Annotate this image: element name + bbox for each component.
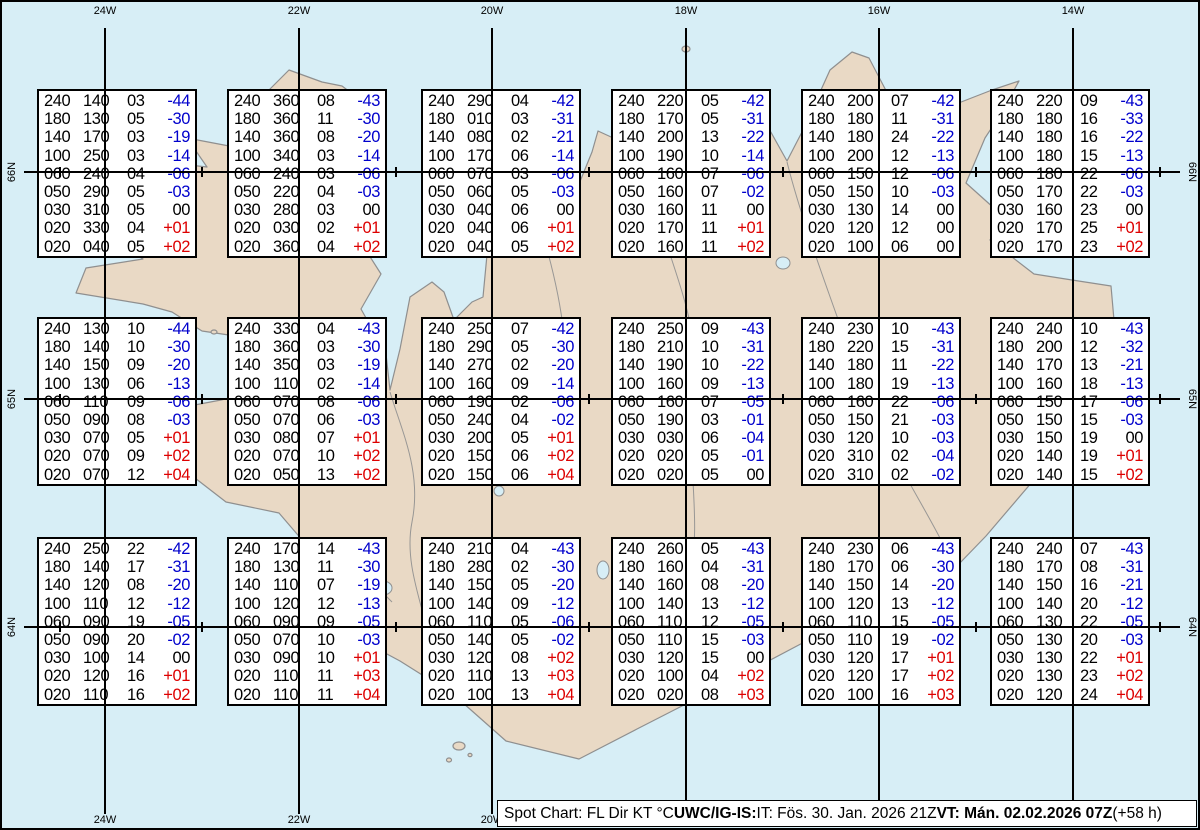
- temperature: -44: [160, 320, 190, 338]
- spot-data-row: 02005013+02: [234, 466, 380, 484]
- spot-data-row: 14008002-21: [428, 128, 574, 146]
- flight-level: 100: [234, 147, 273, 165]
- spot-data-row: 0301201500: [618, 649, 764, 667]
- temperature: -03: [924, 411, 954, 429]
- temperature: -20: [350, 128, 380, 146]
- temperature: +01: [734, 219, 764, 237]
- spot-data-row: 10016009-14: [428, 375, 574, 393]
- temperature: -02: [924, 631, 954, 649]
- temperature: -43: [924, 320, 954, 338]
- wind-speed: 04: [127, 165, 160, 183]
- caption-prefix: Spot Chart: FL Dir KT °C: [504, 805, 674, 823]
- wind-direction: 100: [467, 686, 511, 704]
- wind-speed: 18: [1080, 375, 1113, 393]
- spot-data-row: 06016022-06: [808, 393, 954, 411]
- temperature: +01: [350, 649, 380, 667]
- spot-data-row: 02004006+01: [428, 219, 574, 237]
- temperature: -06: [734, 165, 764, 183]
- temperature: -20: [160, 576, 190, 594]
- wind-direction: 130: [83, 320, 127, 338]
- wind-speed: 06: [511, 447, 544, 465]
- wind-direction: 120: [467, 649, 511, 667]
- temperature: -13: [924, 147, 954, 165]
- flight-level: 050: [428, 411, 467, 429]
- temperature: +01: [160, 667, 190, 685]
- wind-direction: 190: [657, 411, 701, 429]
- wind-speed: 12: [891, 147, 924, 165]
- wind-direction: 110: [273, 576, 317, 594]
- flight-level: 060: [997, 165, 1036, 183]
- flight-level: 050: [618, 411, 657, 429]
- temperature: -20: [160, 356, 190, 374]
- flight-level: 060: [234, 613, 273, 631]
- wind-speed: 08: [317, 393, 350, 411]
- flight-level: 240: [997, 320, 1036, 338]
- temperature: -31: [1113, 558, 1143, 576]
- wind-direction: 290: [467, 92, 511, 110]
- spot-data-row: 24024010-43: [997, 320, 1143, 338]
- flight-level: 060: [234, 393, 273, 411]
- temperature: -42: [734, 92, 764, 110]
- temperature: -20: [544, 576, 574, 594]
- caption-bar: Spot Chart: FL Dir KT °C UWC/IG-IS: IT: …: [497, 800, 1197, 827]
- wind-speed: 10: [317, 631, 350, 649]
- spot-data-row: 10012012-13: [234, 595, 380, 613]
- temperature: -31: [924, 338, 954, 356]
- wind-speed: 09: [701, 320, 734, 338]
- spot-data-row: 14015016-21: [997, 576, 1143, 594]
- wind-direction: 060: [467, 183, 511, 201]
- temperature: -06: [350, 165, 380, 183]
- temperature: -03: [1113, 411, 1143, 429]
- flight-level: 020: [428, 466, 467, 484]
- flight-level: 050: [428, 183, 467, 201]
- flight-level: 020: [808, 686, 847, 704]
- wind-speed: 11: [701, 201, 734, 219]
- spot-data-box: 24036008-4318036011-3014036008-201003400…: [227, 89, 387, 258]
- temperature: -03: [924, 429, 954, 447]
- wind-direction: 290: [467, 338, 511, 356]
- temperature: +03: [924, 686, 954, 704]
- wind-direction: 140: [467, 631, 511, 649]
- wind-direction: 110: [273, 667, 317, 685]
- spot-data-box: 24022009-4318018016-3314018016-221001801…: [990, 89, 1150, 258]
- wind-speed: 09: [511, 595, 544, 613]
- wind-speed: 03: [317, 356, 350, 374]
- temperature: -03: [544, 183, 574, 201]
- flight-level: 050: [618, 631, 657, 649]
- wind-speed: 10: [127, 320, 160, 338]
- spot-data-row: 24025022-42: [44, 540, 190, 558]
- temperature: 00: [1113, 429, 1143, 447]
- flight-level: 030: [808, 429, 847, 447]
- temperature: -43: [350, 540, 380, 558]
- wind-speed: 10: [891, 183, 924, 201]
- spot-data-row: 02017011+01: [618, 219, 764, 237]
- flight-level: 030: [618, 201, 657, 219]
- flight-level: 020: [618, 667, 657, 685]
- wind-speed: 07: [701, 183, 734, 201]
- wind-speed: 12: [891, 219, 924, 237]
- spot-data-row: 18029005-30: [428, 338, 574, 356]
- wind-direction: 220: [847, 338, 891, 356]
- spot-data-row: 02033004+01: [44, 219, 190, 237]
- temperature: -02: [544, 411, 574, 429]
- wind-direction: 240: [1036, 540, 1080, 558]
- wind-direction: 190: [657, 356, 701, 374]
- wind-speed: 12: [701, 613, 734, 631]
- flight-level: 020: [44, 447, 83, 465]
- wind-direction: 160: [657, 375, 701, 393]
- flight-level: 030: [808, 201, 847, 219]
- temperature: 00: [924, 219, 954, 237]
- temperature: +04: [544, 686, 574, 704]
- wind-direction: 130: [1036, 667, 1080, 685]
- wind-speed: 02: [317, 219, 350, 237]
- wind-speed: 25: [1080, 219, 1113, 237]
- spot-data-row: 10014020-12: [997, 595, 1143, 613]
- temperature: 00: [1113, 201, 1143, 219]
- spot-data-row: 02013023+02: [997, 667, 1143, 685]
- wind-speed: 09: [127, 447, 160, 465]
- wind-speed: 07: [701, 393, 734, 411]
- temperature: -06: [924, 393, 954, 411]
- spot-data-row: 14011007-19: [234, 576, 380, 594]
- wind-direction: 160: [1036, 375, 1080, 393]
- wind-direction: 090: [83, 613, 127, 631]
- wind-speed: 07: [1080, 540, 1113, 558]
- spot-data-box: 24024010-4318020012-3214017013-211001601…: [990, 317, 1150, 486]
- temperature: -30: [544, 338, 574, 356]
- spot-data-row: 06011005-06: [428, 613, 574, 631]
- spot-data-row: 02002008+03: [618, 686, 764, 704]
- wind-speed: 16: [127, 686, 160, 704]
- wind-direction: 020: [657, 447, 701, 465]
- flight-level: 020: [808, 447, 847, 465]
- flight-level: 020: [618, 238, 657, 256]
- spot-data-row: 14015014-20: [808, 576, 954, 594]
- temperature: -14: [544, 375, 574, 393]
- spot-data-row: 06015012-06: [808, 165, 954, 183]
- spot-data-row: 06016007-05: [618, 393, 764, 411]
- wind-speed: 02: [317, 375, 350, 393]
- temperature: +02: [1113, 466, 1143, 484]
- wind-speed: 05: [511, 183, 544, 201]
- spot-data-row: 14027002-20: [428, 356, 574, 374]
- spot-data-row: 05014005-02: [428, 631, 574, 649]
- spot-data-row: 14015005-20: [428, 576, 574, 594]
- wind-speed: 09: [127, 356, 160, 374]
- wind-speed: 07: [701, 165, 734, 183]
- temperature: +03: [350, 667, 380, 685]
- spot-data-row: 14018016-22: [997, 128, 1143, 146]
- temperature: -04: [734, 429, 764, 447]
- spot-data-row: 02014015+02: [997, 466, 1143, 484]
- wind-speed: 24: [891, 128, 924, 146]
- spot-data-row: 10025003-14: [44, 147, 190, 165]
- wind-speed: 06: [891, 238, 924, 256]
- temperature: +02: [160, 447, 190, 465]
- spot-data-row: 14018024-22: [808, 128, 954, 146]
- temperature: -06: [160, 165, 190, 183]
- flight-level: 100: [808, 147, 847, 165]
- temperature: +01: [160, 219, 190, 237]
- wind-direction: 150: [847, 576, 891, 594]
- flight-level: 180: [808, 110, 847, 128]
- spot-data-row: 02004005+02: [428, 238, 574, 256]
- wind-direction: 330: [83, 219, 127, 237]
- temperature: -05: [734, 393, 764, 411]
- wind-speed: 03: [317, 165, 350, 183]
- wind-direction: 120: [657, 649, 701, 667]
- spot-data-row: 06016007-06: [618, 165, 764, 183]
- spot-data-row: 03012010-03: [808, 429, 954, 447]
- wind-direction: 140: [1036, 447, 1080, 465]
- flight-level: 050: [44, 183, 83, 201]
- wind-direction: 180: [847, 128, 891, 146]
- temperature: +01: [544, 429, 574, 447]
- spot-data-row: 10018015-13: [997, 147, 1143, 165]
- wind-direction: 220: [1036, 92, 1080, 110]
- spot-data-row: 02010016+03: [808, 686, 954, 704]
- flight-level: 050: [44, 411, 83, 429]
- wind-direction: 160: [657, 238, 701, 256]
- spot-data-row: 10013006-13: [44, 375, 190, 393]
- wind-speed: 05: [701, 466, 734, 484]
- flight-level: 180: [234, 338, 273, 356]
- spot-data-box: 24020007-4218018011-3114018024-221002001…: [801, 89, 961, 258]
- wind-speed: 04: [511, 92, 544, 110]
- spot-data-row: 02014019+01: [997, 447, 1143, 465]
- temperature: -13: [1113, 147, 1143, 165]
- flight-level: 140: [234, 356, 273, 374]
- wind-direction: 110: [273, 375, 317, 393]
- wind-speed: 10: [317, 447, 350, 465]
- spot-data-row: 02016011+02: [618, 238, 764, 256]
- temperature: +02: [734, 238, 764, 256]
- wind-speed: 09: [701, 375, 734, 393]
- flight-level: 100: [997, 147, 1036, 165]
- wind-direction: 120: [1036, 686, 1080, 704]
- wind-direction: 110: [467, 667, 511, 685]
- spot-data-row: 14012008-20: [44, 576, 190, 594]
- spot-data-row: 24020007-42: [808, 92, 954, 110]
- spot-data-row: 02017025+01: [997, 219, 1143, 237]
- wind-speed: 17: [127, 558, 160, 576]
- wind-direction: 310: [83, 201, 127, 219]
- temperature: +02: [350, 466, 380, 484]
- wind-direction: 140: [1036, 466, 1080, 484]
- temperature: +03: [734, 686, 764, 704]
- wind-direction: 080: [273, 429, 317, 447]
- spot-data-row: 18018016-33: [997, 110, 1143, 128]
- flight-level: 140: [808, 576, 847, 594]
- flight-level: 240: [428, 540, 467, 558]
- wind-direction: 110: [83, 686, 127, 704]
- wind-speed: 09: [511, 375, 544, 393]
- spot-data-row: 18028002-30: [428, 558, 574, 576]
- wind-speed: 02: [891, 466, 924, 484]
- wind-speed: 12: [317, 595, 350, 613]
- wind-direction: 110: [847, 631, 891, 649]
- flight-level: 140: [997, 128, 1036, 146]
- wind-direction: 090: [83, 631, 127, 649]
- spot-data-row: 10016018-13: [997, 375, 1143, 393]
- wind-direction: 360: [273, 92, 317, 110]
- wind-direction: 160: [657, 558, 701, 576]
- spot-data-row: 05015010-03: [808, 183, 954, 201]
- wind-direction: 110: [83, 595, 127, 613]
- flight-level: 180: [618, 558, 657, 576]
- flight-level: 050: [808, 183, 847, 201]
- temperature: -02: [160, 631, 190, 649]
- temperature: -14: [160, 147, 190, 165]
- wind-direction: 240: [467, 411, 511, 429]
- wind-speed: 03: [127, 92, 160, 110]
- spot-data-row: 02031002-02: [808, 466, 954, 484]
- wind-speed: 10: [127, 338, 160, 356]
- temperature: -43: [924, 540, 954, 558]
- flight-level: 240: [997, 92, 1036, 110]
- flight-level: 020: [997, 667, 1036, 685]
- spot-data-row: 24036008-43: [234, 92, 380, 110]
- temperature: -14: [734, 147, 764, 165]
- spot-data-row: 02003002+01: [234, 219, 380, 237]
- flight-level: 060: [428, 165, 467, 183]
- wind-speed: 04: [511, 540, 544, 558]
- temperature: -01: [734, 411, 764, 429]
- spot-data-row: 18014010-30: [44, 338, 190, 356]
- spot-data-row: 10034003-14: [234, 147, 380, 165]
- wind-speed: 02: [511, 356, 544, 374]
- spot-data-row: 18014017-31: [44, 558, 190, 576]
- wind-speed: 02: [891, 447, 924, 465]
- flight-level: 180: [428, 110, 467, 128]
- flight-level: 020: [618, 447, 657, 465]
- wind-speed: 13: [701, 595, 734, 613]
- flight-level: 140: [618, 356, 657, 374]
- wind-direction: 180: [1036, 165, 1080, 183]
- flight-level: 240: [234, 92, 273, 110]
- wind-speed: 05: [127, 183, 160, 201]
- flight-level: 060: [997, 613, 1036, 631]
- temperature: +04: [544, 466, 574, 484]
- temperature: +01: [924, 649, 954, 667]
- temperature: -13: [924, 375, 954, 393]
- wind-direction: 160: [657, 165, 701, 183]
- wind-speed: 20: [1080, 631, 1113, 649]
- flight-level: 050: [428, 631, 467, 649]
- wind-direction: 070: [83, 447, 127, 465]
- flight-level: 020: [428, 238, 467, 256]
- spot-data-row: 06011012-05: [618, 613, 764, 631]
- spot-data-row: 06013022-05: [997, 613, 1143, 631]
- wind-speed: 08: [701, 686, 734, 704]
- flight-level: 020: [428, 447, 467, 465]
- wind-speed: 03: [317, 338, 350, 356]
- wind-speed: 19: [1080, 429, 1113, 447]
- temperature: +01: [350, 219, 380, 237]
- temperature: -42: [924, 92, 954, 110]
- wind-direction: 150: [847, 411, 891, 429]
- flight-level: 100: [234, 595, 273, 613]
- wind-direction: 160: [467, 375, 511, 393]
- wind-speed: 21: [891, 411, 924, 429]
- temperature: -05: [924, 613, 954, 631]
- wind-speed: 22: [1080, 165, 1113, 183]
- wind-direction: 330: [273, 320, 317, 338]
- temperature: -44: [160, 92, 190, 110]
- flight-level: 030: [997, 429, 1036, 447]
- temperature: -14: [350, 147, 380, 165]
- spot-data-row: 24021004-43: [428, 540, 574, 558]
- spot-data-row: 02007012+04: [44, 466, 190, 484]
- wind-direction: 030: [273, 219, 317, 237]
- wind-speed: 05: [127, 201, 160, 219]
- wind-speed: 02: [511, 558, 544, 576]
- wind-speed: 05: [127, 110, 160, 128]
- wind-direction: 180: [1036, 147, 1080, 165]
- wind-direction: 340: [273, 147, 317, 165]
- spot-data-row: 03012008+02: [428, 649, 574, 667]
- flight-level: 240: [44, 540, 83, 558]
- spot-data-box: 24029004-4218001003-3114008002-211001700…: [421, 89, 581, 258]
- flight-level: 060: [618, 613, 657, 631]
- temperature: -32: [1113, 338, 1143, 356]
- wind-direction: 160: [657, 183, 701, 201]
- wind-direction: 130: [83, 375, 127, 393]
- spot-data-row: 14035003-19: [234, 356, 380, 374]
- wind-direction: 170: [657, 219, 701, 237]
- spot-data-row: 24033004-43: [234, 320, 380, 338]
- wind-speed: 05: [127, 429, 160, 447]
- temperature: -43: [544, 540, 574, 558]
- flight-level: 240: [808, 320, 847, 338]
- flight-level: 060: [44, 393, 83, 411]
- wind-direction: 110: [273, 686, 317, 704]
- wind-speed: 11: [701, 238, 734, 256]
- wind-direction: 110: [847, 613, 891, 631]
- flight-level: 020: [44, 686, 83, 704]
- wind-speed: 03: [317, 201, 350, 219]
- wind-speed: 08: [511, 649, 544, 667]
- temperature: -06: [1113, 393, 1143, 411]
- temperature: 00: [924, 238, 954, 256]
- wind-direction: 130: [1036, 613, 1080, 631]
- temperature: +02: [924, 667, 954, 685]
- temperature: -19: [350, 356, 380, 374]
- spot-data-row: 18001003-31: [428, 110, 574, 128]
- spot-data-box: 24025022-4218014017-3114012008-201001101…: [37, 537, 197, 706]
- wind-direction: 360: [273, 128, 317, 146]
- temperature: -22: [1113, 128, 1143, 146]
- wind-speed: 03: [511, 110, 544, 128]
- flight-level: 060: [808, 613, 847, 631]
- wind-speed: 10: [317, 649, 350, 667]
- spot-data-row: 10020012-13: [808, 147, 954, 165]
- temperature: -22: [734, 356, 764, 374]
- temperature: +02: [1113, 667, 1143, 685]
- flight-level: 180: [997, 558, 1036, 576]
- spot-data-row: 02012024+04: [997, 686, 1143, 704]
- temperature: 00: [734, 466, 764, 484]
- flight-level: 060: [808, 393, 847, 411]
- wind-direction: 120: [83, 576, 127, 594]
- wind-direction: 140: [83, 338, 127, 356]
- temperature: -13: [350, 595, 380, 613]
- wind-direction: 160: [657, 576, 701, 594]
- flight-level: 060: [234, 165, 273, 183]
